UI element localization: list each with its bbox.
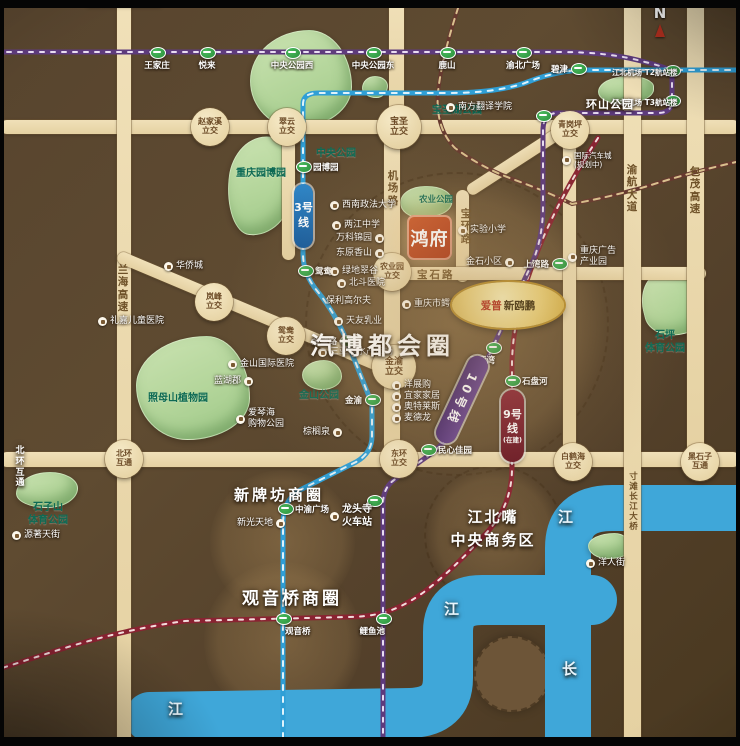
poi-label: 新光天地: [237, 518, 273, 529]
poi-label: 国际汽车城 (规划中): [574, 151, 612, 170]
frame-top: [0, 0, 740, 8]
poi: 洋人街: [586, 558, 625, 569]
interchange-circle: 宝圣 立交: [377, 105, 421, 149]
area-label: 北环互通: [14, 446, 26, 489]
interchange-circle: 黑石子 互通: [681, 443, 719, 481]
poi: 保利高尔夫: [326, 296, 371, 307]
poi: 绿地翠谷: [330, 266, 378, 277]
line-10-badge: 10号线: [433, 352, 492, 446]
poi: 新光天地: [237, 518, 285, 529]
poi-icon: [392, 403, 401, 412]
poi-icon: [330, 512, 339, 521]
poi-icon: [12, 531, 21, 540]
area-label: 江: [558, 506, 574, 527]
interchange-circle: 青岗坪 立交: [551, 111, 589, 149]
metro-station-label: 鹿山: [438, 59, 455, 71]
metro-station-icon: [571, 63, 587, 75]
metro-station-label: 江北机场 T2航站楼: [612, 68, 664, 77]
poi: 龙头寺 火车站: [330, 504, 372, 529]
poi: 两江中学: [332, 220, 380, 231]
poi-label: 绿地翠谷: [342, 266, 378, 277]
compass: N: [648, 4, 672, 37]
poi-icon: [568, 253, 577, 262]
metro-station-label: 园博园: [313, 161, 339, 173]
poi: 实验小学: [458, 225, 506, 236]
poi-icon: [392, 414, 401, 423]
road-name-label: 寸滩长江大桥: [626, 472, 641, 532]
metro-station-label: 鲤鱼池: [359, 625, 385, 637]
road-name-label: 渝航大道: [625, 164, 639, 214]
poi-label: 万科锦园: [336, 233, 372, 244]
poi: 东原香山: [336, 248, 384, 259]
location-map: 中央公园重庆园博园宝圣湖公园照母山植物园石子山 体育公园石坪 体育公园金山公园农…: [0, 0, 740, 746]
poi-icon: [458, 226, 467, 235]
frame-bottom: [0, 737, 740, 746]
poi: 南方翻译学院: [446, 102, 512, 113]
poi-label: 宜家家居: [404, 391, 440, 402]
poi-icon: [276, 519, 285, 528]
metro-station-icon: [298, 265, 314, 277]
metro-station-label: 悦来: [198, 59, 215, 71]
road-name-label: 包茂高速: [688, 166, 702, 216]
area-label: 江: [168, 698, 184, 719]
poi-icon: [334, 317, 343, 326]
poi-label: 西南政法大学: [342, 200, 396, 211]
poi: 西南政法大学: [330, 200, 396, 211]
poi-icon: [562, 156, 571, 165]
park-label: 金山公园: [299, 390, 339, 403]
area-label: 新牌坊商圈: [234, 484, 324, 505]
metro-station-icon: [516, 47, 532, 59]
frame-left: [0, 0, 4, 746]
poi: 源著天街: [12, 530, 60, 541]
poi-icon: [236, 415, 245, 424]
frame-right: [736, 0, 740, 746]
area-label: 长: [562, 658, 578, 679]
poi-icon: [392, 392, 401, 401]
poi-icon: [375, 249, 384, 258]
line-3-badge: 3号线: [294, 184, 313, 248]
poi-label: 洋人街: [598, 558, 625, 569]
metro-station-label: 渝北广场: [506, 59, 540, 71]
project-logo: 鸿府: [407, 215, 452, 260]
poi-label: 爱琴海 购物公园: [248, 408, 284, 431]
park-label: 石坪 体育公园: [645, 330, 685, 355]
poi-label: 两江中学: [344, 220, 380, 231]
poi-label: 北斗医院: [349, 278, 385, 289]
poi: 蓝湖郡: [214, 376, 253, 387]
metro-station-icon: [376, 613, 392, 625]
poi-label: 洋展购: [404, 380, 431, 391]
compass-arrow-icon: [655, 24, 665, 37]
poi-icon: [330, 201, 339, 210]
park-label: 重庆园博园: [236, 168, 286, 181]
poi: 宜家家居: [392, 391, 440, 402]
poi-label: 南方翻译学院: [458, 102, 512, 113]
poi: 华侨城: [164, 261, 203, 272]
poi-label: 重庆广告 产业园: [580, 246, 616, 269]
line-9-badge: 9号线 (在建): [501, 390, 524, 462]
poi-icon: [402, 300, 411, 309]
area-label: 江: [444, 598, 460, 619]
area-label: 江北嘴 中央商务区: [428, 506, 558, 553]
poi: 爱琴海 购物公园: [236, 408, 284, 431]
poi-label: 东原香山: [336, 248, 372, 259]
metro-station-label: 上湾路: [523, 258, 549, 270]
park-label: 石子山 体育公园: [28, 502, 68, 527]
metro-station-icon: [421, 444, 437, 456]
poi-label: 奥特莱斯: [404, 402, 440, 413]
poi: 洋展购: [392, 380, 431, 391]
poi-label: 实验小学: [470, 225, 506, 236]
metro-station-label: 王家庄: [144, 59, 170, 71]
metro-station-icon: [365, 394, 381, 406]
developer-brand: 爱普: [481, 298, 502, 313]
metro-station-label: 观音桥: [285, 625, 311, 637]
poi-label: 棕榈泉: [303, 427, 330, 438]
poi-icon: [164, 262, 173, 271]
poi: 棕榈泉: [303, 427, 342, 438]
interchange-circle: 赵家溪 立交: [191, 108, 229, 146]
poi-label: 龙头寺 火车站: [342, 504, 372, 529]
poi-label: 蓝湖郡: [214, 376, 241, 387]
poi: 万科锦园: [336, 233, 384, 244]
poi-label: 华侨城: [176, 261, 203, 272]
poi-label: 保利高尔夫: [326, 296, 371, 307]
metro-station-icon: [200, 47, 216, 59]
metro-station-label: 中央公园西: [271, 59, 314, 71]
metro-station-label: 碧津: [551, 63, 568, 75]
area-label: 观音桥商圈: [242, 584, 342, 609]
map-screenshot: 中央公园重庆园博园宝圣湖公园照母山植物园石子山 体育公园石坪 体育公园金山公园农…: [0, 0, 740, 746]
poi-icon: [330, 267, 339, 276]
poi-icon: [228, 360, 237, 369]
interchange-circle: 翠云 立交: [268, 108, 306, 146]
poi: 礼嘉儿童医院: [98, 316, 164, 327]
metro-station-label: 中央公园东: [352, 59, 395, 71]
poi-icon: [244, 377, 253, 386]
poi-label: 金山国际医院: [240, 359, 294, 370]
poi: 北斗医院: [337, 278, 385, 289]
poi: 重庆广告 产业园: [568, 246, 616, 269]
poi-icon: [586, 559, 595, 568]
interchange-circle: 岚峰 立交: [195, 283, 233, 321]
metro-station-label: 金渝: [345, 394, 362, 406]
poi-label: 麦德龙: [404, 413, 431, 424]
metro-station-icon: [505, 375, 521, 387]
interchange-circle: 东环 立交: [380, 440, 418, 478]
interchange-circle: 鸳鸯 立交: [267, 317, 305, 355]
metro-station-label: 石盘河: [522, 375, 548, 387]
poi-icon: [337, 279, 346, 288]
poi-label: 金石小区: [466, 257, 502, 268]
metro-station-icon: [150, 47, 166, 59]
metro-station-icon: [285, 47, 301, 59]
metro-station-icon: [536, 110, 552, 122]
poi-label: 源著天街: [24, 530, 60, 541]
developer-name: 新鸥鹏: [504, 298, 536, 313]
metro-station-icon: [486, 342, 502, 354]
interchange-circle: 白鹤海 立交: [554, 443, 592, 481]
area-label: 环山公园: [586, 96, 634, 112]
poi-icon: [375, 234, 384, 243]
poi-icon: [98, 317, 107, 326]
developer-badge: 爱普新鸥鹏: [452, 282, 564, 328]
poi-icon: [392, 381, 401, 390]
poi: 金石小区: [466, 257, 514, 268]
poi: 国际汽车城 (规划中): [562, 151, 612, 170]
road-name-label: 兰海高速: [116, 264, 130, 314]
metro-station-icon: [276, 613, 292, 625]
metro-station-icon: [366, 47, 382, 59]
metro-station-icon: [440, 47, 456, 59]
poi-icon: [332, 221, 341, 230]
poi: 金山国际医院: [228, 359, 294, 370]
poi-icon: [333, 428, 342, 437]
poi-label: 礼嘉儿童医院: [110, 316, 164, 327]
metro-station-label: 民心佳园: [438, 444, 472, 456]
marker-layer: 中央公园重庆园博园宝圣湖公园照母山植物园石子山 体育公园石坪 体育公园金山公园农…: [0, 0, 740, 746]
park-label: 农业公园: [419, 195, 453, 206]
line-9-badge-label: 9号线: [501, 408, 524, 437]
metro-station-icon: [552, 258, 568, 270]
poi: 麦德龙: [392, 413, 431, 424]
poi-icon: [505, 258, 514, 267]
metro-station-icon: [296, 161, 312, 173]
park-label: 中央公园: [316, 148, 356, 161]
poi-icon: [446, 103, 455, 112]
line-9-badge-status: (在建): [503, 437, 522, 444]
poi: 奥特莱斯: [392, 402, 440, 413]
interchange-circle: 北环 互通: [105, 440, 143, 478]
park-label: 照母山植物园: [148, 393, 208, 406]
road-name-label: 宝石路: [417, 269, 455, 281]
area-label: 汽博都会圈: [310, 326, 455, 361]
